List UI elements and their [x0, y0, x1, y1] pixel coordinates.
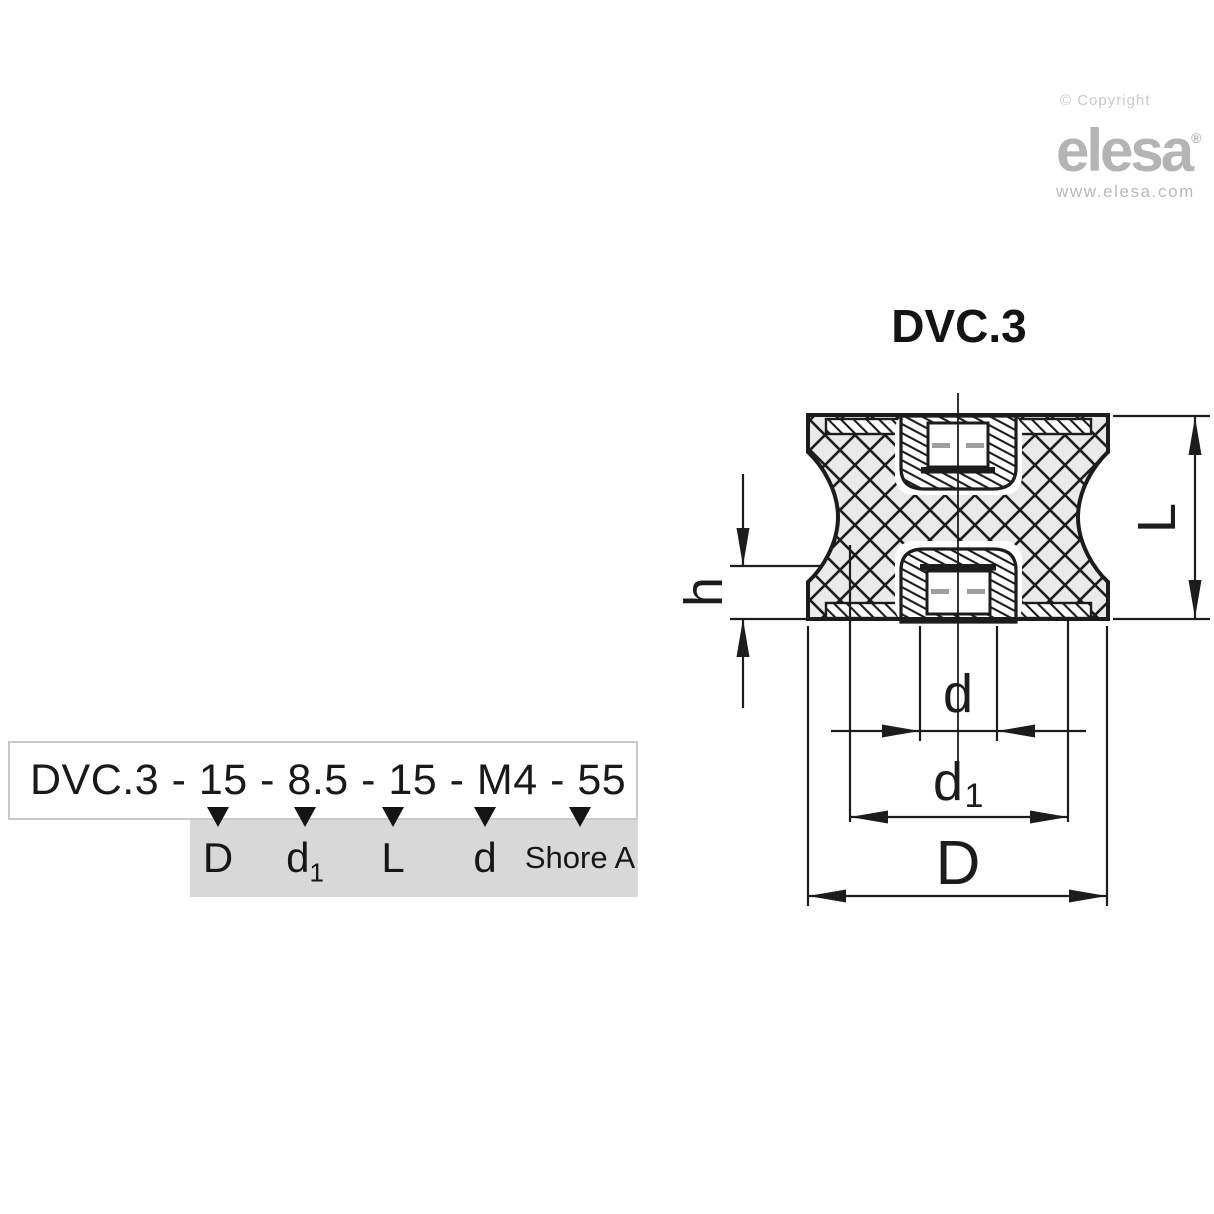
top-washer-right	[1016, 419, 1091, 434]
top-washer-left	[826, 419, 901, 434]
dim-label-L: L	[1127, 503, 1187, 533]
dim-label-h: h	[674, 577, 734, 607]
thread-mark	[967, 589, 985, 594]
website-url: www.elesa.com	[1056, 182, 1212, 202]
code-marker-shore: Shore A	[520, 807, 640, 887]
dim-label-d1: d	[933, 752, 963, 812]
dim-label-D: D	[936, 829, 981, 898]
arrow-up	[737, 619, 750, 657]
bottom-washer-right	[1016, 603, 1091, 618]
arrow-left	[997, 725, 1035, 738]
order-code-box: DVC.3 - 15 - 8.5 - 15 - M4 - 55 D d1 L d…	[8, 741, 638, 897]
arrow-left	[808, 890, 846, 903]
bottom-washer-left	[826, 603, 901, 618]
thread-mark	[966, 443, 984, 448]
code-label: Shore A	[520, 837, 640, 887]
arrow-down-icon	[382, 807, 404, 827]
order-code-text: DVC.3 - 15 - 8.5 - 15 - M4 - 55	[30, 756, 626, 805]
arrow-down-icon	[569, 807, 591, 827]
dim-label-d: d	[943, 664, 973, 724]
arrow-down-icon	[207, 807, 229, 827]
arrow-right	[1030, 811, 1068, 824]
technical-drawing: L h d d 1	[0, 0, 1214, 1214]
logo-text: elesa	[1056, 117, 1191, 184]
page-title: DVC.3	[884, 299, 1034, 353]
catalog-page: L h d d 1	[0, 0, 1214, 1214]
thread-mark	[931, 589, 949, 594]
thread-mark	[932, 443, 950, 448]
arrow-down	[737, 528, 750, 566]
elesa-logo: elesa®	[1056, 109, 1212, 180]
arrow-down-icon	[294, 807, 316, 827]
arrow-down-icon	[474, 807, 496, 827]
arrow-right	[1069, 890, 1107, 903]
arrow-left	[850, 811, 888, 824]
brand-block: © Copyright elesa® www.elesa.com	[1056, 92, 1212, 202]
arrow-up	[1189, 417, 1202, 455]
dim-label-d1-sub: 1	[965, 777, 984, 815]
copyright-text: © Copyright	[1056, 92, 1212, 109]
registered-mark: ®	[1191, 130, 1201, 146]
arrow-right	[882, 725, 920, 738]
arrow-down	[1189, 580, 1202, 618]
